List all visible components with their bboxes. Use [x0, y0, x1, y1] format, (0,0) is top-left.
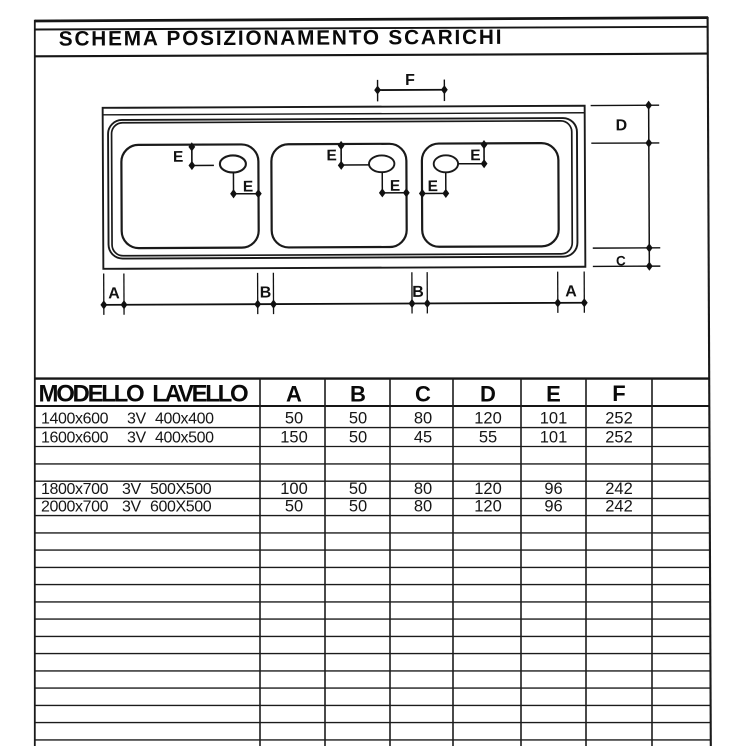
- svg-text:101: 101: [540, 409, 568, 427]
- svg-text:120: 120: [474, 409, 502, 427]
- svg-text:50: 50: [285, 497, 303, 515]
- svg-text:50: 50: [349, 428, 367, 446]
- svg-text:SCHEMA POSIZIONAMENTO SCARICHI: SCHEMA POSIZIONAMENTO SCARICHI: [59, 26, 504, 51]
- svg-text:F: F: [612, 381, 625, 406]
- svg-text:C: C: [616, 253, 626, 268]
- svg-text:E: E: [428, 178, 438, 195]
- svg-text:E: E: [390, 178, 400, 195]
- svg-text:E: E: [326, 147, 336, 164]
- svg-text:96: 96: [544, 480, 562, 498]
- svg-text:80: 80: [414, 480, 432, 498]
- svg-text:MODELLO LAVELLO: MODELLO LAVELLO: [39, 381, 249, 408]
- svg-text:500X500: 500X500: [150, 481, 212, 498]
- svg-text:120: 120: [474, 497, 502, 515]
- svg-text:A: A: [565, 283, 577, 300]
- svg-text:242: 242: [605, 497, 633, 515]
- svg-text:3V: 3V: [122, 498, 141, 515]
- svg-text:252: 252: [605, 409, 633, 427]
- svg-text:E: E: [173, 149, 183, 166]
- svg-text:A: A: [286, 382, 302, 407]
- svg-text:B: B: [412, 284, 424, 301]
- svg-text:1600x600: 1600x600: [41, 429, 109, 446]
- svg-text:1800x700: 1800x700: [41, 481, 109, 498]
- svg-text:3V: 3V: [122, 481, 141, 498]
- svg-text:E: E: [546, 381, 561, 406]
- svg-text:D: D: [480, 381, 496, 406]
- svg-text:2000x700: 2000x700: [41, 498, 109, 515]
- svg-text:101: 101: [540, 428, 568, 446]
- svg-text:A: A: [108, 285, 120, 302]
- svg-text:50: 50: [285, 409, 303, 427]
- svg-text:B: B: [260, 285, 272, 302]
- svg-text:96: 96: [544, 497, 562, 515]
- svg-text:F: F: [405, 72, 415, 89]
- svg-text:50: 50: [349, 480, 367, 498]
- svg-text:120: 120: [474, 480, 502, 498]
- svg-text:100: 100: [280, 480, 308, 498]
- svg-text:B: B: [350, 382, 366, 407]
- svg-text:D: D: [616, 117, 628, 134]
- svg-text:80: 80: [414, 409, 432, 427]
- svg-text:50: 50: [349, 409, 367, 427]
- svg-text:3V: 3V: [127, 429, 146, 446]
- svg-text:400x400: 400x400: [155, 410, 214, 427]
- svg-text:50: 50: [349, 497, 367, 515]
- svg-text:400x500: 400x500: [155, 429, 214, 446]
- svg-text:E: E: [470, 147, 480, 164]
- svg-text:45: 45: [414, 428, 432, 446]
- svg-text:80: 80: [414, 497, 432, 515]
- svg-text:E: E: [243, 178, 253, 195]
- svg-text:3V: 3V: [127, 410, 146, 427]
- svg-text:600X500: 600X500: [150, 498, 212, 515]
- svg-text:1400x600: 1400x600: [41, 410, 109, 427]
- svg-text:150: 150: [280, 428, 308, 446]
- svg-text:242: 242: [605, 480, 633, 498]
- svg-text:C: C: [415, 382, 431, 407]
- svg-text:252: 252: [605, 428, 633, 446]
- svg-text:55: 55: [479, 428, 497, 446]
